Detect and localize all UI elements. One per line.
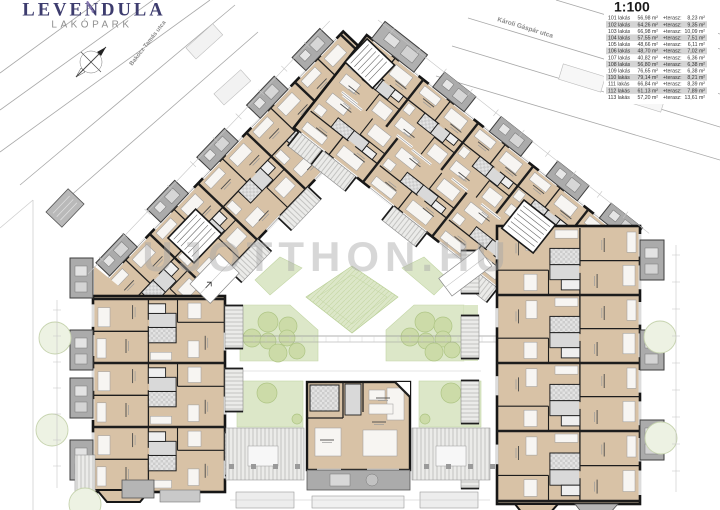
svg-text:66,84 m²: 66,84 m² [638,82,659,88]
svg-text:105 lakás: 105 lakás [608,42,631,48]
svg-text:7,89 m²: 7,89 m² [687,88,705,94]
svg-text:7,51 m²: 7,51 m² [687,36,705,42]
svg-text:+terasz:: +terasz: [663,75,682,81]
svg-text:+terasz:: +terasz: [663,95,682,101]
svg-text:+terasz:: +terasz: [663,62,682,68]
svg-text:111 lakás: 111 lakás [608,82,630,88]
svg-text:48,70 m²: 48,70 m² [638,49,659,55]
svg-text:113 lakás: 113 lakás [608,95,630,101]
svg-text:LAKÓPARK: LAKÓPARK [51,18,132,31]
svg-text:110 lakás: 110 lakás [608,75,630,81]
svg-text:8,21 m²: 8,21 m² [687,75,705,81]
svg-text:+terasz:: +terasz: [663,16,682,22]
svg-text:+terasz:: +terasz: [663,22,682,28]
svg-text:6,11 m²: 6,11 m² [688,42,705,48]
svg-text:56,98 m²: 56,98 m² [638,16,659,22]
svg-text:101 lakás: 101 lakás [608,16,631,22]
svg-text:40,82 m²: 40,82 m² [638,55,659,61]
svg-text:104 lakás: 104 lakás [608,36,631,42]
svg-text:9,35 m²: 9,35 m² [687,22,705,28]
svg-text:10,09 m²: 10,09 m² [685,29,706,35]
svg-text:48,66 m²: 48,66 m² [638,42,659,48]
svg-text:6,36 m²: 6,36 m² [687,55,705,61]
svg-text:6,38 m²: 6,38 m² [687,69,705,75]
svg-text:+terasz:: +terasz: [663,69,682,75]
svg-text:56,80 m²: 56,80 m² [638,62,659,68]
svg-text:103 lakás: 103 lakás [608,29,631,35]
svg-text:8,39 m²: 8,39 m² [687,82,705,88]
svg-text:109 lakás: 109 lakás [608,69,631,75]
svg-text:112 lakás: 112 lakás [608,88,630,94]
svg-text:+terasz:: +terasz: [663,82,682,88]
svg-text:LEVENDULA: LEVENDULA [22,1,165,21]
svg-text:76,65 m²: 76,65 m² [638,69,659,75]
svg-text:+terasz:: +terasz: [663,36,682,42]
svg-text:8,23 m²: 8,23 m² [687,16,705,22]
svg-text:102 lakás: 102 lakás [608,22,631,28]
svg-text:6,38 m²: 6,38 m² [687,62,705,68]
svg-text:108 lakás: 108 lakás [608,62,631,68]
svg-text:66,98 m²: 66,98 m² [638,29,659,35]
svg-text:79,14 m²: 79,14 m² [638,75,659,81]
svg-text:7,02 m²: 7,02 m² [687,49,705,55]
svg-text:64,26 m²: 64,26 m² [638,22,659,28]
svg-text:107 lakás: 107 lakás [608,55,631,61]
svg-text:57,20 m²: 57,20 m² [638,95,659,101]
svg-text:1:100: 1:100 [614,0,650,15]
svg-text:61,13 m²: 61,13 m² [638,88,659,94]
svg-text:UJOTTHON.HU: UJOTTHON.HU [142,233,511,280]
svg-text:+terasz:: +terasz: [663,29,682,35]
svg-text:13,61 m²: 13,61 m² [685,95,706,101]
svg-text:57,55 m²: 57,55 m² [638,36,659,42]
svg-text:+terasz:: +terasz: [663,49,682,55]
svg-text:+terasz:: +terasz: [663,55,682,61]
svg-text:106 lakás: 106 lakás [608,49,631,55]
svg-text:+terasz:: +terasz: [663,88,682,94]
svg-text:+terasz:: +terasz: [663,42,682,48]
